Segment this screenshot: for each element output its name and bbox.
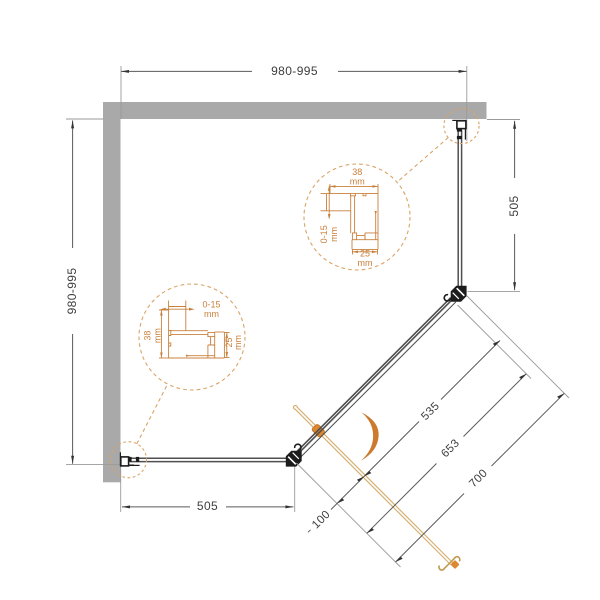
svg-text:mm: mm — [152, 328, 162, 343]
svg-text:0-15: 0-15 — [202, 300, 220, 310]
svg-text:mm: mm — [233, 335, 243, 350]
svg-text:505: 505 — [507, 195, 521, 216]
svg-text:mm: mm — [350, 177, 365, 187]
svg-text:505: 505 — [197, 499, 218, 513]
svg-text:0-15: 0-15 — [319, 225, 329, 243]
svg-text:38: 38 — [352, 167, 362, 177]
svg-text:38: 38 — [143, 331, 153, 341]
svg-text:980-995: 980-995 — [65, 268, 79, 315]
svg-text:mm: mm — [204, 309, 219, 319]
svg-text:mm: mm — [358, 258, 373, 268]
svg-text:mm: mm — [329, 227, 339, 242]
svg-text:980-995: 980-995 — [271, 64, 318, 78]
svg-text:25: 25 — [360, 249, 370, 259]
